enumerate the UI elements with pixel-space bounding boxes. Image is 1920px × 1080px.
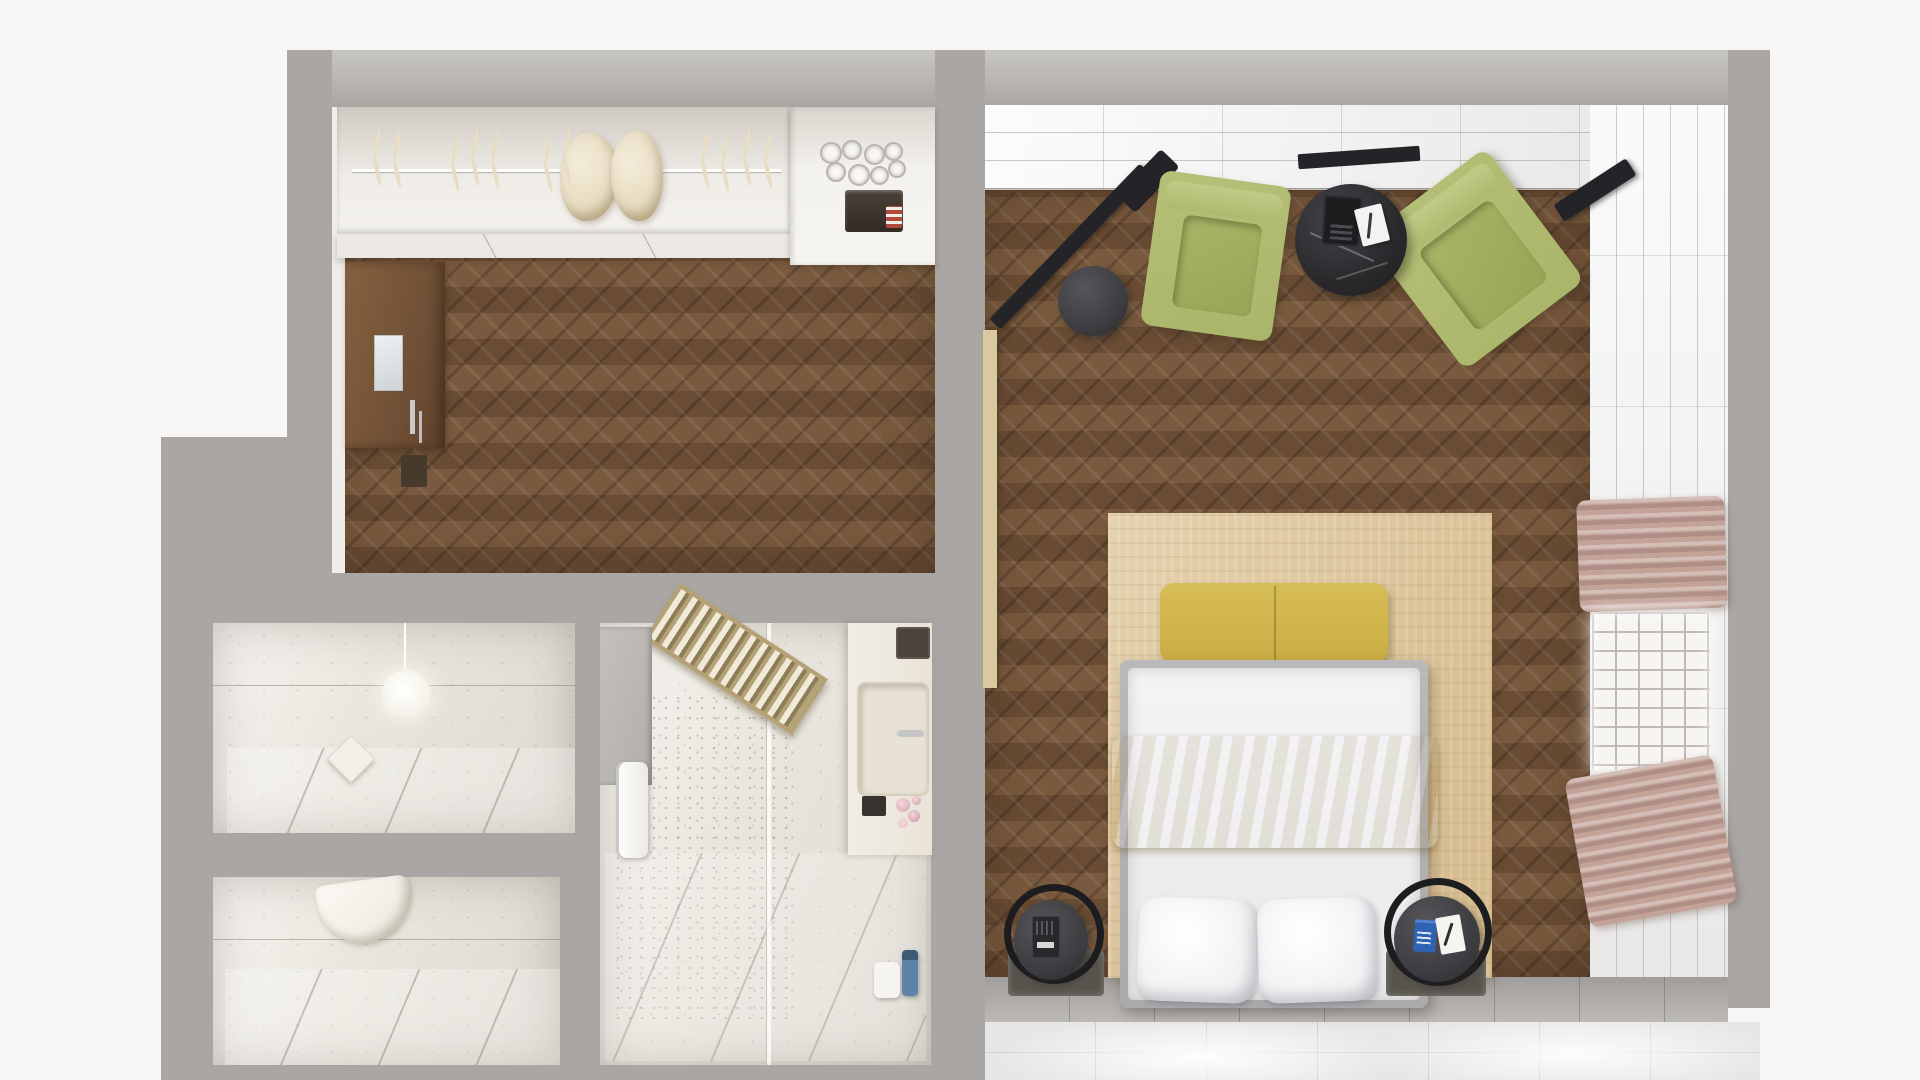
coffee-capsule-box [886, 206, 902, 228]
flower-blossom [896, 798, 910, 812]
pendant-cord [404, 623, 406, 675]
armchair-left [1140, 170, 1292, 343]
drinking-glass [884, 142, 903, 161]
pen [1367, 213, 1373, 239]
clothes-hanger [562, 128, 571, 186]
wall-left-lower [161, 437, 213, 1080]
drinking-glass [826, 162, 846, 182]
clothes-hanger [392, 131, 401, 189]
key-card-text-lines [1416, 931, 1431, 944]
curtain-upper [1576, 495, 1728, 612]
flower-blossom [908, 810, 920, 822]
radio-display [1037, 942, 1054, 948]
curtain-lower [1564, 754, 1738, 928]
nightstand-left [1014, 900, 1088, 980]
tv-stand-base [1058, 266, 1128, 336]
clothes-hanger [763, 131, 772, 189]
floor-plan-render [0, 0, 1920, 1080]
drinking-glass [870, 166, 889, 185]
open-door-leaf [983, 330, 997, 688]
flower-blossom [898, 818, 908, 828]
sink-faucet [898, 730, 924, 737]
clothes-hanger [742, 128, 751, 186]
lower-terrace-glossy-tiles [985, 1022, 1760, 1080]
wardrobe-front-edge [337, 233, 790, 258]
clothes-hanger [543, 134, 552, 192]
wall-bottom-left [161, 1065, 985, 1080]
pen-small [1443, 922, 1453, 946]
door-mirror [374, 335, 403, 391]
clothes-hanger [490, 131, 499, 189]
wall-top [287, 50, 1770, 107]
bed-foot-bench [1160, 583, 1388, 663]
vanity-sink [857, 682, 929, 796]
toilet-room-floor-tiles [225, 969, 560, 1065]
pillow-left [1136, 896, 1258, 1004]
garment-hanging-2 [611, 131, 663, 221]
minibar-counter [790, 107, 935, 265]
armchair-left-backrest [1164, 180, 1283, 224]
flower-blossom [912, 796, 921, 805]
drinking-glass [864, 144, 885, 165]
door-handle [410, 400, 415, 434]
drinking-glass [842, 140, 862, 160]
bed-throw-blanket [1112, 736, 1438, 848]
telephone-keypad [1330, 221, 1353, 240]
key-card-blue [1413, 919, 1437, 952]
radio-buttons [1036, 921, 1056, 935]
pillow-right [1256, 896, 1378, 1004]
nightstand-right [1394, 896, 1480, 982]
soap-box [874, 962, 900, 998]
light-switch-panel [401, 455, 427, 487]
wall-shower-bedroom [931, 623, 985, 1080]
wall-hall-bedroom [935, 50, 985, 573]
clothes-hanger [470, 128, 479, 186]
notepad-small [1435, 914, 1466, 955]
marble-vein [1336, 262, 1388, 281]
shampoo-bottle [902, 950, 918, 996]
globe-pendant-lamp [382, 670, 430, 718]
drinking-glass [888, 160, 906, 178]
wall-right [1728, 50, 1770, 1008]
drinking-glass [820, 142, 842, 164]
drinking-glass [848, 164, 870, 186]
towel-on-rail [616, 762, 648, 858]
counter-tray-black [862, 796, 886, 816]
clothes-hanger [450, 134, 459, 192]
radio-device [1032, 916, 1060, 958]
clothes-hanger [372, 128, 381, 186]
clothes-hanger [720, 134, 729, 192]
clothes-hanger [700, 131, 709, 189]
armchair-left-seat [1172, 214, 1263, 318]
bathroom-small-floor-tiles [227, 748, 575, 833]
wall-bath-divider-horizontal [161, 833, 575, 877]
wall-mid-horizontal [161, 573, 985, 623]
wall-left-upper [287, 50, 332, 573]
tissue-box [896, 627, 930, 659]
bathroom-small-floor [213, 623, 575, 833]
window-lattice [1592, 612, 1710, 770]
